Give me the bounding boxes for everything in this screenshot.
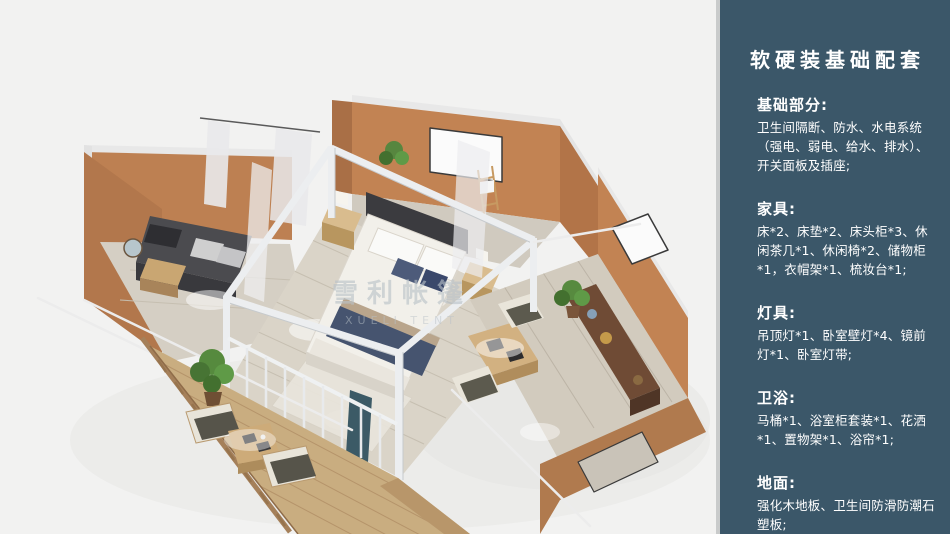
section-flooring: 地面: 强化木地板、卫生间防滑防潮石塑板; [757, 472, 938, 534]
section-lighting: 灯具: 吊顶灯*1、卧室壁灯*4、镜前灯*1、卧室灯带; [757, 302, 938, 364]
floorplan-svg: 雪利帐篷 XUELI TENT [0, 0, 717, 534]
section-body: 卫生间隔断、防水、水电系统（强电、弱电、给水、排水）、开关面板及插座; [757, 118, 938, 175]
slide: 雪利帐篷 XUELI TENT 软硬装基础配套 基础部分: 卫生间隔断、防水、水… [0, 0, 950, 534]
floor-light-glow [476, 338, 524, 358]
section-body: 强化木地板、卫生间防滑防潮石塑板; [757, 496, 938, 534]
watermark: 雪利帐篷 XUELI TENT [332, 278, 472, 327]
section-body: 吊顶灯*1、卧室壁灯*4、镜前灯*1、卧室灯带; [757, 326, 938, 364]
watermark-en: XUELI TENT [345, 314, 459, 327]
section-basics: 基础部分: 卫生间隔断、防水、水电系统（强电、弱电、给水、排水）、开关面板及插座… [757, 94, 938, 175]
panel-title: 软硬装基础配套 [720, 44, 950, 73]
floor-light-glow [520, 423, 560, 441]
section-heading: 基础部分: [757, 94, 938, 115]
spec-panel: 软硬装基础配套 基础部分: 卫生间隔断、防水、水电系统（强电、弱电、给水、排水）… [720, 0, 950, 534]
round-mirror [124, 239, 142, 257]
section-heading: 家具: [757, 198, 938, 219]
section-body: 马桶*1、浴室柜套装*1、花洒*1、置物架*1、浴帘*1; [757, 411, 938, 449]
section-furniture: 家具: 床*2、床垫*2、床头柜*3、休闲茶几*1、休闲椅*2、储物柜*1，衣帽… [757, 198, 938, 279]
floor-light-glow [224, 429, 276, 451]
section-bathroom: 卫浴: 马桶*1、浴室柜套装*1、花洒*1、置物架*1、浴帘*1; [757, 387, 938, 449]
section-heading: 灯具: [757, 302, 938, 323]
floorplan-3d-render: 雪利帐篷 XUELI TENT [0, 0, 717, 534]
watermark-cn: 雪利帐篷 [332, 278, 472, 309]
curtain [270, 128, 312, 226]
curtain [204, 120, 230, 208]
section-body: 床*2、床垫*2、床头柜*3、休闲茶几*1、休闲椅*2、储物柜*1，衣帽架*1、… [757, 222, 938, 279]
section-heading: 卫浴: [757, 387, 938, 408]
panel-sections: 基础部分: 卫生间隔断、防水、水电系统（强电、弱电、给水、排水）、开关面板及插座… [720, 73, 950, 534]
section-heading: 地面: [757, 472, 938, 493]
